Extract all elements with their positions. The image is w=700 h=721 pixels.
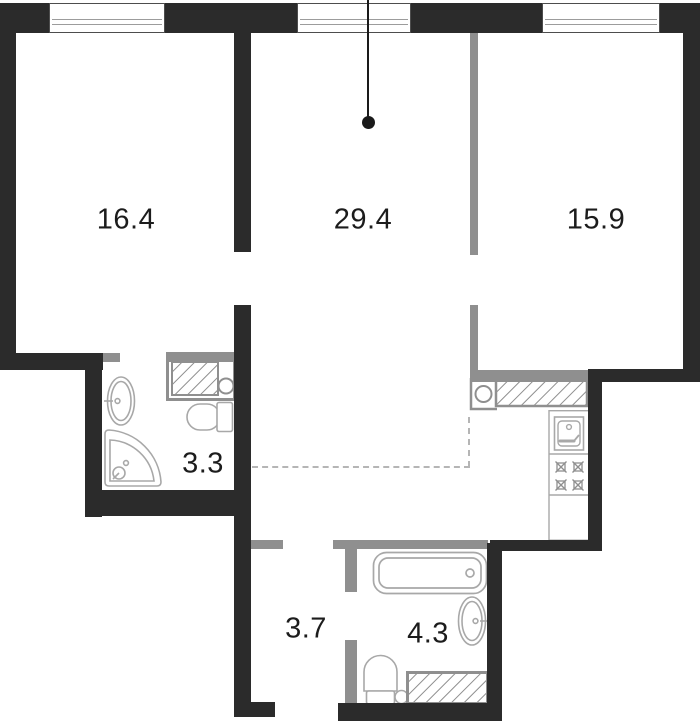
sink-icon (104, 375, 136, 427)
sink-icon (457, 595, 489, 647)
outer-wall (683, 3, 700, 382)
outer-wall (487, 543, 502, 721)
partition-wall (345, 640, 357, 704)
section-marker-line (367, 0, 369, 118)
partition-wall (250, 540, 283, 549)
zone-dashed-line (252, 466, 470, 468)
room-area-label: 3.7 (285, 613, 327, 646)
partition-wall (470, 33, 478, 255)
partition-wall (345, 549, 357, 592)
floor-plan: 16.4 29.4 15.9 3.3 3.7 4.3 (0, 0, 700, 721)
window-glass-line (545, 19, 657, 25)
shower-icon (101, 426, 165, 489)
interior-wall (234, 33, 251, 252)
bathtub-icon (372, 551, 488, 595)
outer-wall (0, 3, 16, 370)
partition-wall (167, 353, 235, 362)
partition-wall (470, 305, 478, 370)
partition-wall (100, 353, 120, 362)
outer-wall (490, 540, 602, 551)
stove-icon (556, 462, 584, 491)
washing-machine-icon (406, 671, 489, 705)
outer-wall (411, 3, 542, 33)
partition-wall (470, 370, 588, 382)
room-area-label: 15.9 (567, 204, 625, 237)
interior-wall (234, 305, 251, 717)
room-area-label: 3.3 (182, 448, 224, 481)
outer-wall (85, 490, 250, 516)
partition-wall (333, 540, 488, 549)
kitchen-unit (548, 410, 590, 541)
outer-wall (338, 703, 500, 721)
room-area-label: 16.4 (97, 204, 155, 237)
outer-wall (165, 3, 297, 33)
outer-wall (234, 702, 275, 717)
section-marker-dot (362, 116, 375, 129)
kitchen-sink-icon (555, 417, 584, 450)
window-glass-line (52, 19, 162, 25)
window (297, 3, 411, 33)
room-area-label: 29.4 (334, 204, 392, 237)
outer-wall (588, 369, 602, 551)
window (49, 3, 165, 33)
toilet-icon (360, 652, 410, 705)
room-area-label: 4.3 (407, 618, 449, 651)
toilet-icon (184, 401, 234, 433)
zone-dashed-line (468, 417, 470, 467)
window-glass-line (300, 19, 408, 25)
window (542, 3, 660, 33)
